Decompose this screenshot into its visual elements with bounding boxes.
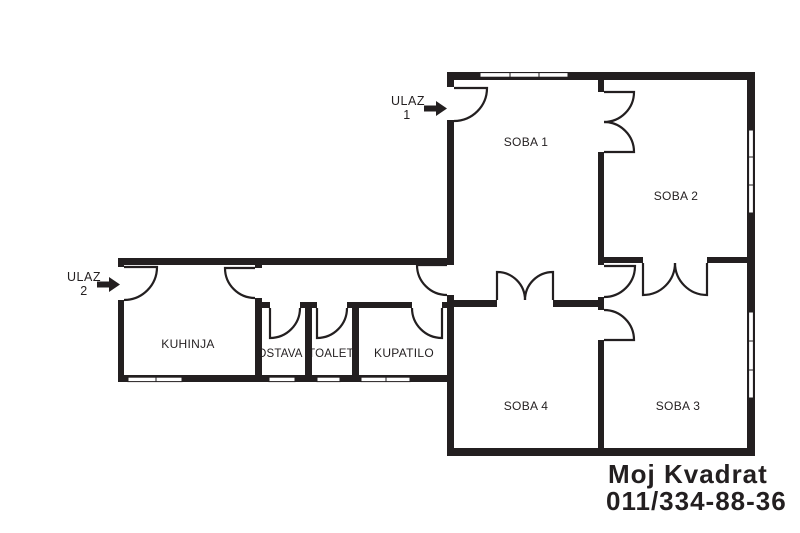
door-ulaz2 [124,267,157,300]
door-ostava [270,308,300,338]
room-label-soba3: SOBA 3 [656,399,701,413]
ulaz1-label-word: ULAZ [391,94,425,108]
wall-segment [447,72,454,87]
window-toalet-bottom [317,377,340,381]
ulaz2-label-word: ULAZ [67,270,101,284]
room-label-soba4: SOBA 4 [504,399,549,413]
wall-segment [553,300,604,307]
wall-segment [447,300,497,307]
door-kupatilo [412,308,442,338]
floor-plan-page: SOBA 1 SOBA 2 SOBA 3 SOBA 4 KUHINJA OSTA… [0,0,800,533]
door-soba1-soba4-leaf-right [525,272,553,300]
door-soba1-soba3 [604,266,635,297]
door-soba4-soba3 [604,310,634,340]
wall-segment [707,257,755,263]
door-soba1-soba2-leaf-lower [604,122,634,152]
wall-segment [598,340,604,448]
watermark: Moj Kvadrat 011/334-88-36 [606,459,787,516]
room-label-soba1: SOBA 1 [504,135,549,149]
door-kuhinja-corridor [225,268,255,298]
ulaz1-arrow-icon [424,101,447,116]
wall-segment [447,120,454,265]
wall-segment [598,152,604,265]
door-soba1-soba4-leaf-left [497,272,525,300]
wall-segment [352,302,359,382]
ulaz1-label-number: 1 [403,108,410,122]
wall-segment [305,302,312,382]
window-kupatilo-bottom [361,377,410,381]
wall-segment [118,258,454,265]
floor-plan-drawing: SOBA 1 SOBA 2 SOBA 3 SOBA 4 KUHINJA OSTA… [0,0,800,533]
watermark-brand: Moj Kvadrat [608,459,768,489]
room-label-soba2: SOBA 2 [654,189,699,203]
room-label-ostava: OSTAVA [257,348,302,360]
windows [128,73,753,398]
window-soba2-right [749,130,754,213]
door-toalet [317,308,347,338]
door-soba2-soba3-leaf-left [643,263,675,295]
wall-segment [255,298,262,375]
room-label-toalet: TOALET [308,348,354,360]
window-ostava-bottom [269,377,295,381]
window-soba1-top [480,73,568,78]
wall-segment [255,302,270,308]
room-label-kuhinja: KUHINJA [161,337,214,351]
wall-segment [447,295,454,448]
watermark-phone: 011/334-88-36 [606,486,787,516]
ulaz2-label-number: 2 [80,284,87,298]
wall-segment [598,257,643,263]
room-label-kupatilo: KUPATILO [374,346,434,360]
wall-segment [255,265,262,268]
doors [124,88,707,340]
door-soba2-soba3-leaf-right [675,263,707,295]
door-soba1-soba2-leaf-upper [604,92,634,122]
wall-segment [598,80,604,92]
wall-segment [447,448,755,456]
wall-segment [442,302,454,308]
door-corridor-soba1 [417,265,447,295]
window-soba3-right [749,312,754,398]
window-kuhinja-bottom [128,377,182,381]
wall-segment [118,258,124,267]
door-ulaz1 [454,88,487,121]
room-labels: SOBA 1 SOBA 2 SOBA 3 SOBA 4 KUHINJA OSTA… [161,135,700,413]
wall-segment [118,300,124,382]
